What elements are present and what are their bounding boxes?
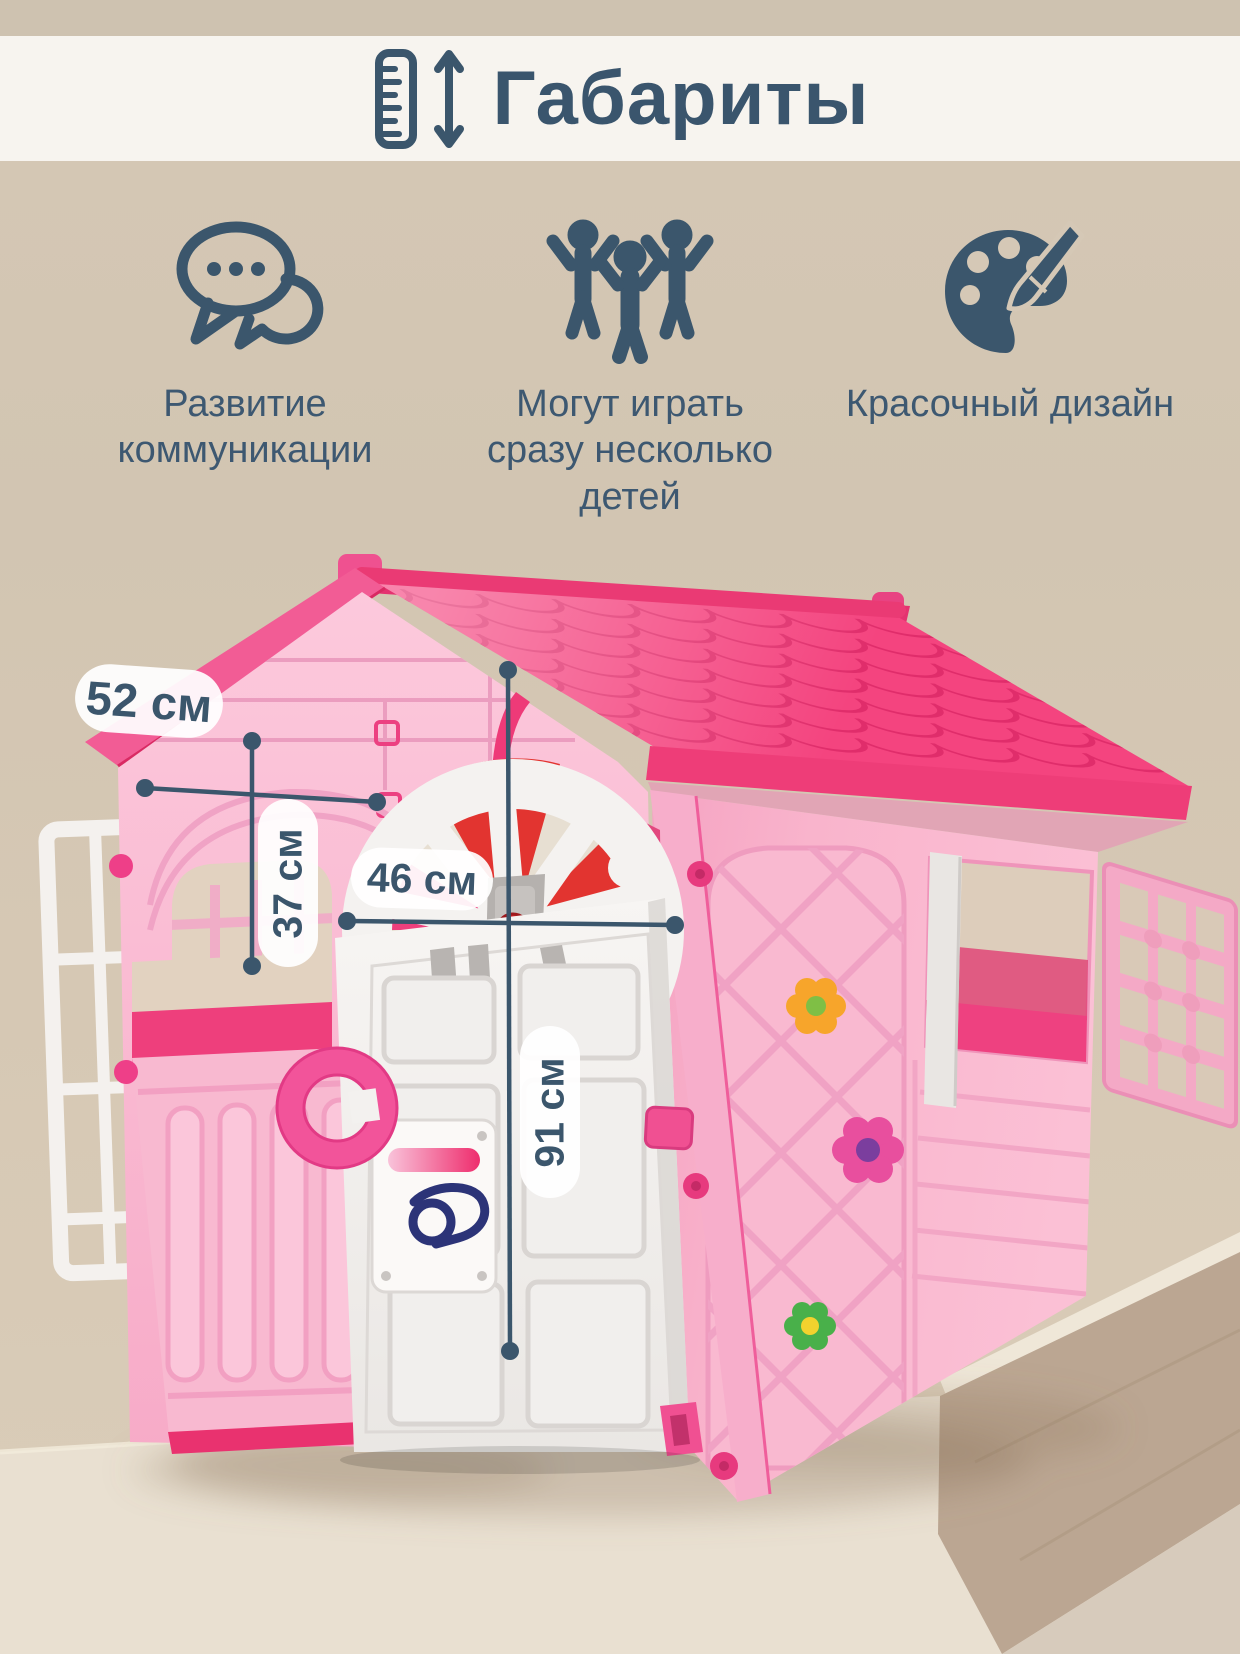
children-icon: [541, 215, 719, 365]
ruler-icon: [371, 47, 421, 151]
header-icons: [371, 47, 467, 151]
dimension-label-door-width: 46 см: [350, 847, 494, 912]
mail-slot-plate: [372, 1120, 496, 1292]
dimension-value: 46 см: [366, 854, 478, 905]
dimension-label-window-height: 37 см: [258, 799, 318, 967]
features-row: Развитие коммуникации: [0, 215, 1240, 525]
feature-communication-label: Развитие коммуникации: [75, 381, 415, 474]
right-window-shutter: [1104, 862, 1236, 1128]
feature-multiple-children-label: Могут играть сразу несколько детей: [465, 381, 795, 520]
header: Габариты: [0, 36, 1240, 161]
dimension-value: 91 см: [527, 1057, 574, 1167]
feature-communication: Развитие коммуникации: [75, 215, 415, 474]
height-arrow-icon: [431, 47, 467, 151]
speech-bubbles-icon: [160, 215, 330, 365]
palette-icon: [932, 215, 1088, 365]
dimension-label-side-width: 52 см: [73, 662, 225, 740]
feature-colorful-design: Красочный дизайн: [845, 215, 1175, 427]
dimension-value: 37 см: [265, 828, 312, 938]
product-infographic: Габариты Развитие коммуникации: [0, 0, 1240, 1654]
feature-multiple-children: Могут играть сразу несколько детей: [465, 215, 795, 520]
page-title: Габариты: [493, 61, 870, 137]
dimension-value: 52 см: [84, 669, 214, 733]
dimension-label-door-height: 91 см: [520, 1026, 580, 1198]
feature-colorful-design-label: Красочный дизайн: [846, 381, 1174, 427]
